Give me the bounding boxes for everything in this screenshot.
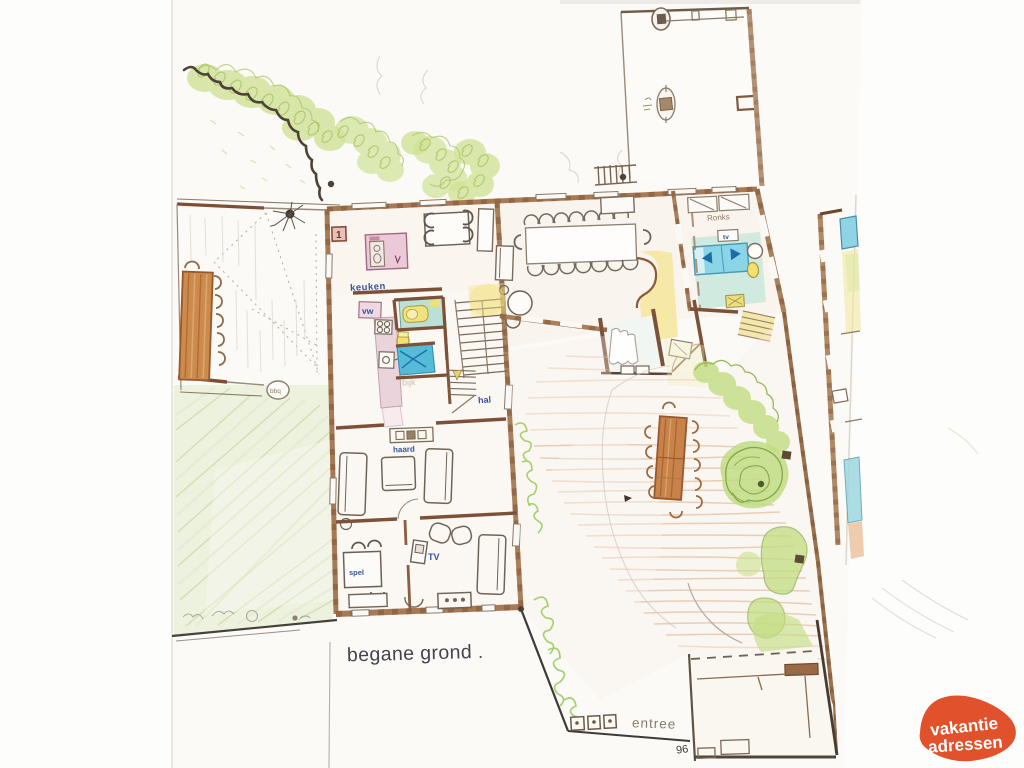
svg-text:Ronks: Ronks	[707, 212, 730, 223]
svg-text:tv: tv	[723, 234, 730, 241]
svg-text:haard: haard	[393, 445, 415, 455]
svg-text:bbq: bbq	[270, 388, 281, 395]
svg-text:entree: entree	[632, 715, 677, 732]
svg-text:spel: spel	[349, 568, 364, 577]
svg-text:begane grond .: begane grond .	[347, 641, 484, 667]
svg-text:vw: vw	[362, 306, 374, 316]
svg-text:bijk: bijk	[402, 377, 416, 387]
svg-text:96: 96	[675, 743, 689, 757]
svg-text:1: 1	[336, 230, 342, 241]
svg-text:hal: hal	[478, 395, 492, 406]
svg-text:TV: TV	[428, 552, 440, 562]
